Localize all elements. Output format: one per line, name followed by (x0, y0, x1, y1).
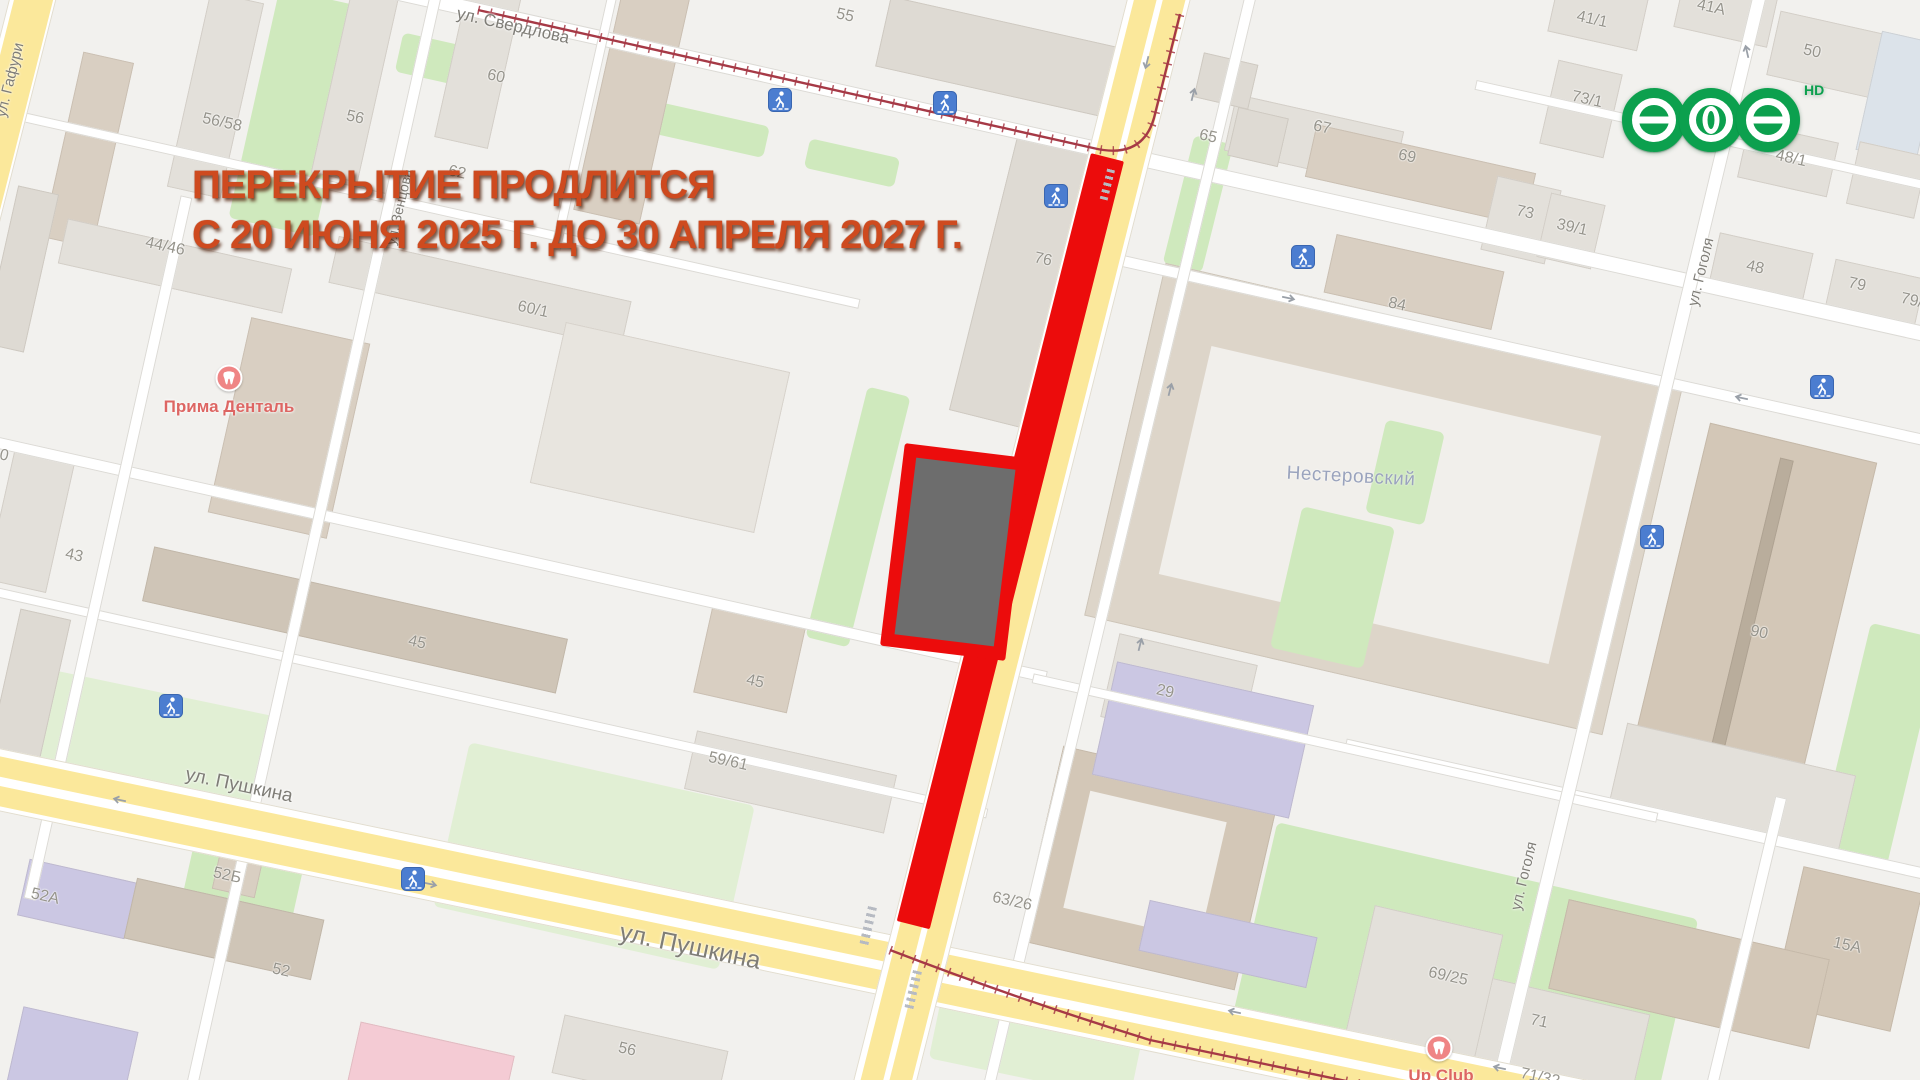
poi-name-label: Up Club (1408, 1066, 1473, 1080)
building-number-label: 29 (1154, 681, 1175, 702)
building-number-label: 69/25 (1427, 964, 1470, 990)
pedestrian-crossing-icon (768, 88, 792, 112)
pedestrian-crossing-icon (1810, 375, 1834, 399)
building-number-label: 90 (1748, 622, 1769, 643)
pedestrian-crossing-icon (401, 867, 425, 891)
building-number-label: 15А (1831, 934, 1863, 958)
street-name-label: ул. Гоголя (1508, 840, 1541, 912)
building-number-label: 50 (1801, 41, 1822, 62)
map-screenshot: Нестеровский 5556/5856606244/4660/176656… (0, 0, 1920, 1080)
building-number-label: 63/26 (991, 889, 1034, 915)
building-number-label: 60 (485, 66, 506, 87)
pedestrian-crossing-icon (768, 88, 792, 112)
headline-line1: ПЕРЕКРЫТИЕ ПРОДЛИТСЯ (192, 160, 962, 210)
building-number-label: 71 (1528, 1011, 1549, 1032)
building-number-label: 48 (1744, 257, 1765, 278)
building-number-label: 52Б (211, 864, 243, 888)
pedestrian-crossing-icon (933, 91, 957, 115)
building-number-label: 73 (1514, 202, 1535, 223)
building-number-label: 56/58 (201, 110, 244, 136)
building-number-label: 55 (834, 5, 855, 26)
building-number-label: 76 (1032, 249, 1053, 270)
street-name-label: ул. Пушкина (617, 918, 763, 976)
street-name-label: ул. Пушкина (183, 764, 294, 808)
building-number-label: 60/1 (516, 298, 550, 322)
tooth-icon (1431, 1040, 1448, 1057)
building-number-label: 73/1 (1570, 88, 1604, 112)
logo-ring-1 (1622, 88, 1686, 152)
building-number-label: 0 (0, 446, 10, 466)
building-number-label: 45 (406, 632, 427, 653)
pedestrian-crossing-icon (1044, 184, 1068, 208)
building-number-label: 65 (1197, 126, 1218, 147)
pedestrian-crossing-icon (1640, 525, 1664, 549)
poi-icon-tooth-icon (1426, 1035, 1453, 1062)
pedestrian-crossing-icon (401, 867, 425, 891)
building-number-label: 79/1 (1899, 290, 1920, 314)
logo-ring-3 (1736, 88, 1800, 152)
building-number-label: 59/61 (707, 749, 750, 775)
building-number-label: 71/32 (1519, 1065, 1562, 1080)
pedestrian-crossing-icon (1810, 375, 1834, 399)
building-number-label: 84 (1386, 294, 1407, 315)
building-number-label: 56 (616, 1039, 637, 1060)
logo-ring-2 (1679, 88, 1743, 152)
headline-line2: С 20 ИЮНЯ 2025 Г. ДО 30 АПРЕЛЯ 2027 Г. (192, 210, 962, 260)
pedestrian-crossing-icon (933, 91, 957, 115)
building-number-label: 69 (1396, 146, 1417, 167)
building-number-label: 44/46 (144, 234, 187, 260)
pedestrian-crossing-icon (1291, 245, 1315, 269)
building-number-label: 39/1 (1555, 216, 1589, 240)
building-number-label: 43 (63, 545, 84, 566)
building-number-label: 41/1 (1575, 8, 1609, 32)
logo-glyph-theta (1753, 105, 1783, 135)
building-number-label: 45 (744, 671, 765, 692)
pedestrian-crossing-icon (159, 694, 183, 718)
street-name-label: ул. Гафури (0, 41, 27, 119)
poi-icon-tooth-icon (216, 365, 243, 392)
street-name-label: ул. Свердлова (455, 4, 572, 49)
building-number-label: 79 (1846, 274, 1867, 295)
building-number-label: 67 (1311, 117, 1332, 138)
street-name-label: ул. Гоголя (1685, 236, 1718, 308)
poi-name-label: Прима Денталь (164, 397, 295, 417)
logo-glyph-phi (1696, 105, 1726, 135)
building-number-label: 56 (344, 107, 365, 128)
pedestrian-crossing-icon (1291, 245, 1315, 269)
headline: ПЕРЕКРЫТИЕ ПРОДЛИТСЯ С 20 ИЮНЯ 2025 Г. Д… (192, 160, 962, 260)
pedestrian-crossing-icon (159, 694, 183, 718)
hd-badge: HD (1804, 82, 1824, 98)
logo-glyph-theta (1639, 105, 1669, 135)
quarter-label: Нестеровский (1286, 463, 1416, 492)
pedestrian-crossing-icon (1640, 525, 1664, 549)
pedestrian-crossing-icon (1044, 184, 1068, 208)
building-number-label: 41А (1695, 0, 1727, 20)
channel-logo: HD (1622, 86, 1832, 158)
tooth-icon (221, 370, 238, 387)
building-number-label: 52А (29, 885, 61, 909)
building-number-label: 52 (270, 960, 291, 981)
